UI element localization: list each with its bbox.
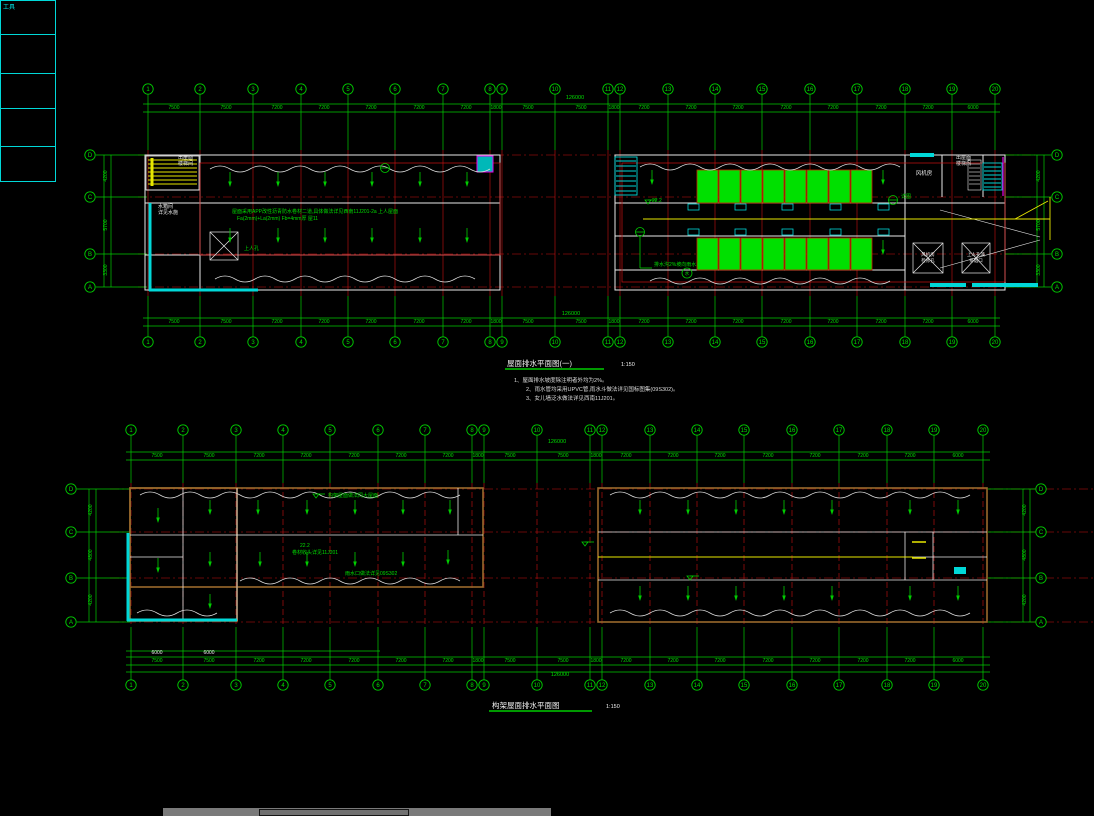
svg-text:B: B — [1039, 576, 1043, 582]
svg-text:7200: 7200 — [714, 658, 725, 664]
plan1-title-block: 屋面排水平面图(一) 1:150 1、屋面排水坡度除注明者外均为2%。 2、雨水… — [505, 358, 679, 402]
svg-text:7200: 7200 — [904, 658, 915, 664]
svg-text:15: 15 — [759, 87, 766, 93]
plan1-top-axis-bubbles: 1234567891011121314151617181920 — [143, 84, 1000, 150]
svg-text:7200: 7200 — [875, 319, 886, 325]
svg-text:A: A — [1055, 285, 1059, 291]
plan1-note-3: 3、女儿墙泛水做法详见西南11J201。 — [526, 394, 618, 402]
svg-text:B: B — [88, 252, 92, 258]
svg-text:5700: 5700 — [103, 219, 109, 230]
svg-text:7200: 7200 — [620, 658, 631, 664]
svg-text:7200: 7200 — [348, 453, 359, 459]
svg-text:详图: 详图 — [901, 193, 911, 200]
svg-text:1800: 1800 — [608, 105, 619, 111]
plan2-overall-dim-bottom: 126000 — [551, 672, 569, 678]
svg-text:检修孔: 检修孔 — [921, 257, 935, 264]
svg-text:7200: 7200 — [685, 105, 696, 111]
svg-text:7200: 7200 — [667, 453, 678, 459]
plan2-cyan-parapet-line — [127, 533, 237, 621]
plan1-building-walls — [145, 155, 1040, 290]
svg-text:7200: 7200 — [318, 319, 329, 325]
svg-text:7200: 7200 — [271, 105, 282, 111]
svg-text:7200: 7200 — [271, 319, 282, 325]
svg-text:7200: 7200 — [413, 105, 424, 111]
plan2-yellow-lines — [598, 542, 926, 558]
svg-text:19: 19 — [949, 340, 956, 346]
svg-text:7200: 7200 — [365, 105, 376, 111]
svg-text:4800: 4800 — [1022, 549, 1028, 560]
svg-text:19: 19 — [931, 428, 938, 434]
svg-text:7200: 7200 — [638, 319, 649, 325]
svg-text:7500: 7500 — [575, 105, 586, 111]
svg-text:20: 20 — [992, 87, 999, 93]
plan1-drain-row-top — [688, 204, 889, 210]
svg-text:7500: 7500 — [504, 658, 515, 664]
plan2-scale: 1:150 — [606, 704, 620, 710]
plan1-dim-lines — [104, 104, 1044, 326]
svg-text:出屋面: 出屋面 — [178, 154, 193, 161]
svg-text:D: D — [69, 487, 74, 493]
svg-text:1800: 1800 — [608, 319, 619, 325]
svg-text:7200: 7200 — [685, 319, 696, 325]
svg-text:构架屋面做法同大屋面: 构架屋面做法同大屋面 — [328, 492, 378, 499]
svg-text:7200: 7200 — [827, 105, 838, 111]
svg-text:22.2: 22.2 — [300, 543, 310, 549]
svg-text:7200: 7200 — [460, 105, 471, 111]
svg-text:13: 13 — [665, 87, 672, 93]
svg-text:7200: 7200 — [922, 105, 933, 111]
svg-text:7500: 7500 — [220, 105, 231, 111]
svg-text:A: A — [69, 620, 73, 626]
palette-slot-4[interactable] — [1, 109, 55, 147]
cad-drawing: 1234567891011121314151617181920 12345678… — [0, 0, 1094, 816]
svg-text:D: D — [1039, 487, 1044, 493]
svg-text:3300: 3300 — [103, 264, 109, 275]
svg-text:7200: 7200 — [460, 319, 471, 325]
svg-text:14: 14 — [712, 340, 719, 346]
svg-text:排烟口: 排烟口 — [969, 257, 983, 264]
svg-text:上人孔: 上人孔 — [244, 245, 259, 252]
svg-text:14: 14 — [712, 87, 719, 93]
svg-text:排水沟2%坡向雨水斗: 排水沟2%坡向雨水斗 — [654, 261, 701, 268]
palette-slot-1[interactable]: 工具 — [1, 1, 55, 35]
svg-text:15: 15 — [741, 683, 748, 689]
plan1-note-2: 2、雨水管均采用UPVC管,雨水斗做法详见国标图集(09S302)。 — [526, 385, 679, 393]
svg-text:4800: 4800 — [88, 549, 94, 560]
svg-text:7200: 7200 — [638, 105, 649, 111]
svg-text:7200: 7200 — [780, 319, 791, 325]
svg-text:水箱间: 水箱间 — [158, 203, 173, 210]
svg-text:详见水施: 详见水施 — [158, 209, 178, 216]
svg-text:风机房: 风机房 — [916, 169, 933, 177]
svg-text:19: 19 — [949, 87, 956, 93]
svg-text:7200: 7200 — [732, 105, 743, 111]
svg-text:7200: 7200 — [253, 658, 264, 664]
svg-text:20: 20 — [980, 683, 987, 689]
svg-text:20: 20 — [980, 428, 987, 434]
svg-text:18: 18 — [902, 87, 909, 93]
svg-text:7200: 7200 — [253, 453, 264, 459]
svg-text:7500: 7500 — [203, 658, 214, 664]
svg-text:4200: 4200 — [1036, 170, 1042, 181]
svg-text:1800: 1800 — [590, 453, 601, 459]
plan1-left-axis-bubbles: DCBA — [85, 150, 147, 292]
svg-text:6000: 6000 — [952, 658, 963, 664]
cad-viewport: 1234567891011121314151617181920 12345678… — [0, 0, 1094, 816]
svg-text:7200: 7200 — [732, 319, 743, 325]
svg-text:3300: 3300 — [1036, 264, 1042, 275]
svg-text:7200: 7200 — [667, 658, 678, 664]
svg-text:18: 18 — [902, 340, 909, 346]
svg-text:14: 14 — [694, 428, 701, 434]
plan2-top-dims: 7500750072007200720072007200180075007500… — [151, 453, 963, 459]
svg-text:5700: 5700 — [1036, 219, 1042, 230]
svg-text:10: 10 — [534, 428, 541, 434]
svg-text:11: 11 — [587, 683, 594, 689]
svg-text:7500: 7500 — [151, 658, 162, 664]
svg-text:7500: 7500 — [557, 453, 568, 459]
svg-text:楼梯间: 楼梯间 — [178, 160, 193, 167]
svg-text:16: 16 — [789, 683, 796, 689]
svg-text:C: C — [1039, 530, 1044, 536]
svg-text:11: 11 — [605, 340, 612, 346]
svg-text:B: B — [1055, 252, 1059, 258]
plan1-scale: 1:150 — [621, 362, 635, 368]
svg-text:7200: 7200 — [413, 319, 424, 325]
plan2-bottom-dims: 7500750072007200720072007200180075007500… — [151, 658, 963, 664]
svg-text:4200: 4200 — [103, 170, 109, 181]
tool-palette: 工具 — [0, 0, 56, 182]
palette-slot-3[interactable] — [1, 74, 55, 109]
svg-text:C: C — [88, 195, 93, 201]
palette-slot-5[interactable] — [1, 147, 55, 181]
svg-text:雨水口做法详见09S302: 雨水口做法详见09S302 — [345, 570, 397, 577]
svg-text:7200: 7200 — [348, 658, 359, 664]
plan1-title: 屋面排水平面图(一) — [507, 358, 572, 368]
svg-text:7200: 7200 — [922, 319, 933, 325]
svg-text:16: 16 — [789, 428, 796, 434]
svg-text:17: 17 — [836, 428, 843, 434]
plan2-break-lines — [137, 492, 970, 616]
plan2-red-grid-verticals — [131, 483, 983, 627]
svg-text:7200: 7200 — [857, 453, 868, 459]
plan2-cyan-drain — [954, 567, 966, 574]
palette-label: 工具 — [1, 1, 55, 12]
plan2-left-axis-bubbles: DCBA — [66, 484, 130, 627]
plan2-white-dim-1: 6000 — [151, 650, 162, 656]
svg-text:7200: 7200 — [620, 453, 631, 459]
svg-text:7200: 7200 — [809, 658, 820, 664]
svg-text:15: 15 — [759, 340, 766, 346]
plan1-panel-row-top — [697, 170, 872, 203]
svg-text:7200: 7200 — [365, 319, 376, 325]
svg-text:13: 13 — [647, 428, 654, 434]
svg-text:12: 12 — [599, 683, 606, 689]
plan1-note-1: 1、屋面排水坡度除注明者外均为2%。 — [514, 376, 608, 384]
svg-text:10: 10 — [552, 340, 559, 346]
svg-text:20: 20 — [992, 340, 999, 346]
svg-text:4200: 4200 — [88, 594, 94, 605]
svg-text:11: 11 — [587, 428, 594, 434]
svg-text:1800: 1800 — [472, 658, 483, 664]
svg-text:16: 16 — [807, 340, 814, 346]
svg-text:楼梯间: 楼梯间 — [956, 160, 971, 167]
plan1-overall-dim-bottom: 126000 — [562, 311, 580, 317]
svg-text:1800: 1800 — [590, 658, 601, 664]
svg-text:A: A — [1039, 620, 1043, 626]
svg-text:6000: 6000 — [967, 319, 978, 325]
svg-text:7200: 7200 — [904, 453, 915, 459]
plan1-access-hatches — [210, 232, 990, 273]
svg-text:D: D — [1055, 153, 1060, 159]
svg-text:7200: 7200 — [395, 658, 406, 664]
svg-text:出屋面: 出屋面 — [956, 154, 971, 161]
plan2-overall-dim-top: 126000 — [548, 439, 566, 445]
svg-text:10: 10 — [552, 87, 559, 93]
svg-text:7500: 7500 — [168, 105, 179, 111]
svg-text:14: 14 — [694, 683, 701, 689]
svg-text:7200: 7200 — [809, 453, 820, 459]
svg-text:7500: 7500 — [203, 453, 214, 459]
svg-text:7500: 7500 — [504, 453, 515, 459]
svg-text:7500: 7500 — [575, 319, 586, 325]
svg-text:17: 17 — [836, 683, 843, 689]
svg-text:16: 16 — [807, 87, 814, 93]
svg-text:7200: 7200 — [442, 453, 453, 459]
svg-text:7200: 7200 — [762, 658, 773, 664]
svg-text:7200: 7200 — [827, 319, 838, 325]
svg-text:7200: 7200 — [714, 453, 725, 459]
svg-text:12: 12 — [617, 340, 624, 346]
horizontal-scrollbar[interactable] — [163, 808, 551, 816]
svg-text:7200: 7200 — [780, 105, 791, 111]
svg-text:7200: 7200 — [318, 105, 329, 111]
svg-text:7200: 7200 — [857, 658, 868, 664]
svg-text:C: C — [1055, 195, 1060, 201]
plan2-title-block: 构架屋面排水平面图 1:150 — [489, 700, 620, 711]
svg-text:7500: 7500 — [522, 319, 533, 325]
svg-text:4200: 4200 — [1022, 594, 1028, 605]
svg-text:18: 18 — [884, 683, 891, 689]
svg-text:B: B — [69, 576, 73, 582]
svg-text:12: 12 — [617, 87, 624, 93]
svg-text:7200: 7200 — [442, 658, 453, 664]
plan2-right-axis-bubbles: DCBA — [988, 484, 1046, 627]
plan2-white-dim-2: 6000 — [203, 650, 214, 656]
svg-text:12: 12 — [599, 428, 606, 434]
svg-text:屋面采用APP改性沥青防水卷材二道,具体做法详见西南11J2: 屋面采用APP改性沥青防水卷材二道,具体做法详见西南11J201-2a 上人屋面 — [232, 208, 398, 215]
plan1-stair-cyan-right — [983, 163, 1002, 190]
svg-text:7200: 7200 — [875, 105, 886, 111]
svg-text:19: 19 — [931, 683, 938, 689]
svg-text:4200: 4200 — [88, 504, 94, 515]
svg-text:D: D — [88, 153, 93, 159]
plan2-dim-lines — [89, 452, 1030, 672]
plan1-drain-row-bottom — [688, 229, 889, 235]
svg-text:Fa(2mm)+La(2mm) Fb=4mm厚 屋11: Fa(2mm)+La(2mm) Fb=4mm厚 屋11 — [237, 216, 318, 222]
svg-text:6000: 6000 — [967, 105, 978, 111]
svg-text:18: 18 — [884, 428, 891, 434]
svg-text:风机房: 风机房 — [921, 251, 935, 258]
svg-text:4200: 4200 — [1022, 504, 1028, 515]
svg-text:6000: 6000 — [952, 453, 963, 459]
svg-text:17: 17 — [854, 87, 861, 93]
svg-text:A: A — [88, 285, 92, 291]
svg-text:C: C — [69, 530, 74, 536]
scrollbar-thumb[interactable] — [259, 809, 409, 816]
svg-text:7200: 7200 — [762, 453, 773, 459]
svg-text:上人孔兼: 上人孔兼 — [967, 251, 985, 258]
svg-text:7500: 7500 — [557, 658, 568, 664]
svg-text:1800: 1800 — [472, 453, 483, 459]
svg-text:卷材收头详见11J201: 卷材收头详见11J201 — [292, 549, 338, 556]
plan1-right-axis-bubbles: DCBA — [1005, 150, 1062, 292]
palette-slot-2[interactable] — [1, 35, 55, 74]
svg-text:1800: 1800 — [490, 319, 501, 325]
svg-text:15: 15 — [741, 428, 748, 434]
svg-text:水: 水 — [685, 270, 690, 276]
plan2-title: 构架屋面排水平面图 — [492, 700, 560, 710]
svg-text:7200: 7200 — [395, 453, 406, 459]
plan1-overall-dim-top: 126000 — [566, 95, 584, 101]
svg-text:7500: 7500 — [220, 319, 231, 325]
svg-text:13: 13 — [647, 683, 654, 689]
svg-text:7500: 7500 — [168, 319, 179, 325]
svg-text:7500: 7500 — [151, 453, 162, 459]
svg-text:11: 11 — [605, 87, 612, 93]
svg-text:10: 10 — [534, 683, 541, 689]
svg-text:7200: 7200 — [300, 658, 311, 664]
svg-text:7200: 7200 — [300, 453, 311, 459]
svg-text:13: 13 — [665, 340, 672, 346]
plan2-building-walls — [130, 488, 987, 622]
svg-text:7500: 7500 — [522, 105, 533, 111]
svg-text:17: 17 — [854, 340, 861, 346]
svg-text:1800: 1800 — [490, 105, 501, 111]
svg-text:22.2: 22.2 — [652, 198, 662, 204]
